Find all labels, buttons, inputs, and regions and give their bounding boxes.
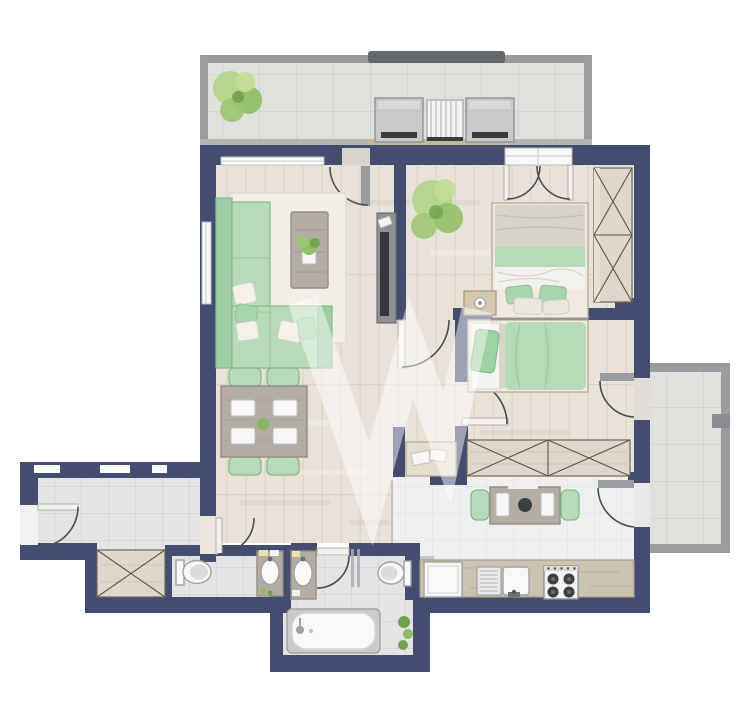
centerpiece	[257, 418, 269, 430]
kitchen-sink	[477, 567, 529, 597]
balcony-chair-left	[375, 98, 423, 142]
bedroom2-balcony-opening	[634, 378, 650, 420]
kitchen-balcony-opening	[634, 483, 650, 527]
balcony-slat-table	[427, 100, 463, 141]
double-bed	[492, 203, 588, 318]
wc-vanity-sink	[257, 550, 283, 596]
kitchen-chair	[561, 490, 579, 520]
floor-plan-page	[0, 0, 738, 720]
kitchen-chair	[471, 490, 489, 520]
bath-toilet	[378, 561, 411, 586]
placemat	[541, 493, 554, 516]
bed-duvet	[495, 205, 585, 247]
tv-sideboard	[377, 213, 396, 323]
balcony-chair-right	[466, 98, 514, 142]
top-balcony	[200, 51, 592, 147]
coffee-table	[291, 212, 328, 288]
bed-mint-band	[495, 247, 585, 267]
living-window	[221, 157, 324, 165]
dining-chair	[229, 368, 261, 386]
kitchen-table-set	[471, 486, 579, 524]
dining-chair	[229, 457, 261, 475]
stove	[544, 566, 578, 599]
hall-opening	[200, 516, 216, 554]
built-in-wardrobe	[467, 440, 630, 476]
tv-screen	[380, 232, 389, 316]
floor-plan-image	[0, 0, 738, 720]
railing-handrail	[368, 51, 505, 63]
entry-opening	[20, 505, 38, 545]
washing-machine	[424, 562, 462, 597]
bed2-duvet	[505, 322, 586, 390]
bathtub	[287, 609, 380, 653]
floor-seam	[391, 480, 393, 543]
placemat	[496, 493, 509, 516]
closet	[97, 550, 165, 597]
living-balcony-opening	[342, 148, 370, 165]
bedroom1-wardrobe	[594, 168, 632, 302]
bowl	[518, 498, 532, 512]
wc-toilet	[176, 560, 211, 585]
left-wall-window	[202, 222, 211, 304]
side-balcony-floor	[650, 372, 722, 544]
bath-vanity-sink	[291, 551, 316, 599]
bedroom1-french-door-frame	[505, 148, 572, 165]
bath-faucet-icon	[296, 626, 304, 634]
dining-chair	[267, 368, 299, 386]
dining-chair	[267, 457, 299, 475]
